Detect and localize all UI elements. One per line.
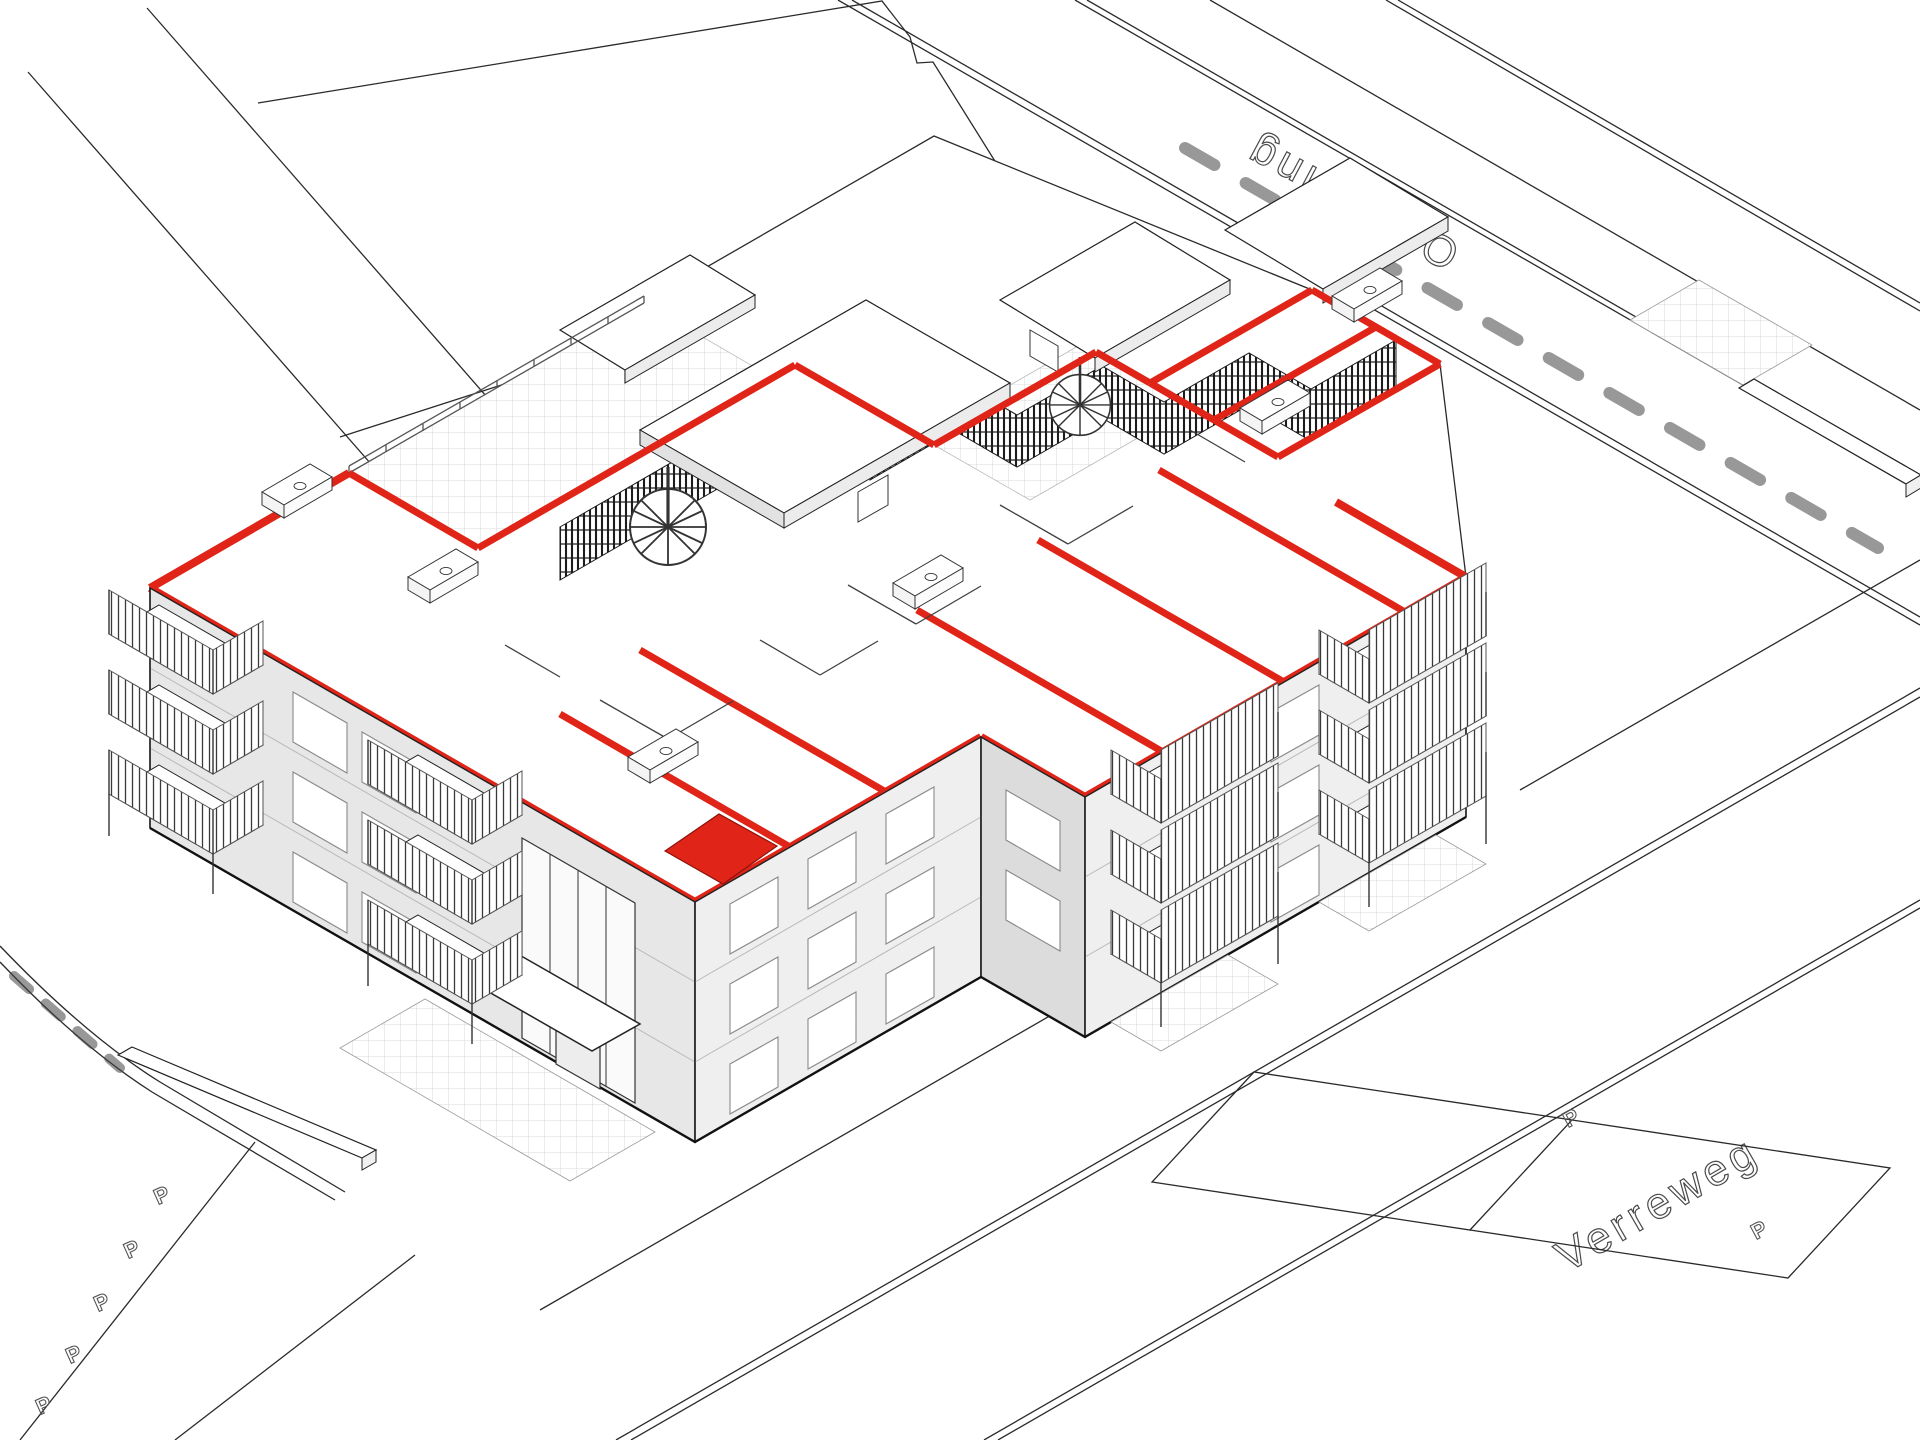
lane-dashes	[14, 976, 120, 1068]
parking-marker: P	[120, 1235, 144, 1264]
parking-area-left: P P P P P	[20, 1142, 415, 1440]
site-path-edge	[28, 72, 420, 520]
drawing-canvas: Onderling Verreweg P P P P P P P P	[0, 0, 1920, 1440]
main-building	[109, 136, 1486, 1181]
parking-marker: P	[1747, 1215, 1772, 1244]
parking-marker: P	[32, 1391, 56, 1420]
pavement-patch	[1630, 280, 1812, 385]
parking-marker: P	[150, 1181, 174, 1210]
road-west	[0, 946, 376, 1200]
parking-marker: P	[90, 1288, 114, 1317]
site-path-edge	[147, 8, 535, 452]
axonometric-site-drawing: Onderling Verreweg P P P P P P P P	[0, 0, 1920, 1440]
parking-marker: P	[1559, 1103, 1584, 1132]
parking-marker: P	[62, 1340, 86, 1369]
curb-bar	[1739, 379, 1920, 497]
